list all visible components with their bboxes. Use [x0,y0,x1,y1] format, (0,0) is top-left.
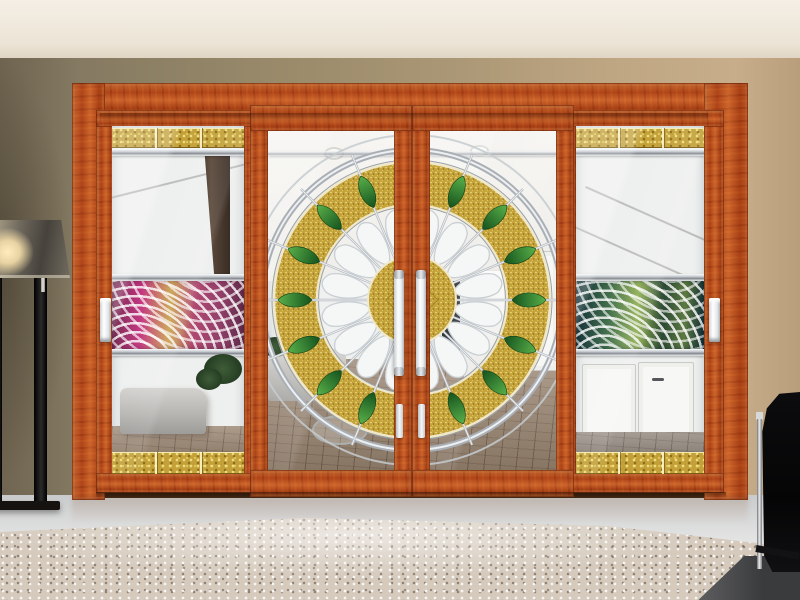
stile [556,105,574,497]
header-shadow [100,113,708,122]
glass-sheen [112,126,244,474]
door-right-outer [564,110,724,493]
lamp-frame-right [34,263,47,505]
glass-sheen [576,126,704,474]
lamp-stem [41,278,45,292]
door-handle [100,298,111,342]
flush-pull [418,404,425,438]
lamp-base [0,501,60,510]
stile [250,105,268,497]
door-handle [709,298,720,342]
ceiling [0,0,800,62]
glass-left-outer [112,126,244,474]
rail-bottom [564,473,724,493]
glass-right-outer [576,126,704,474]
rail-bottom [96,473,256,493]
lamp-shade [0,220,70,278]
door-left-outer [96,110,256,493]
door-handle [394,270,404,376]
room-photo [0,0,800,600]
door-handle [416,270,426,376]
flush-pull [396,404,403,438]
lamp-frame-left [0,263,2,505]
center-doors [250,105,574,497]
